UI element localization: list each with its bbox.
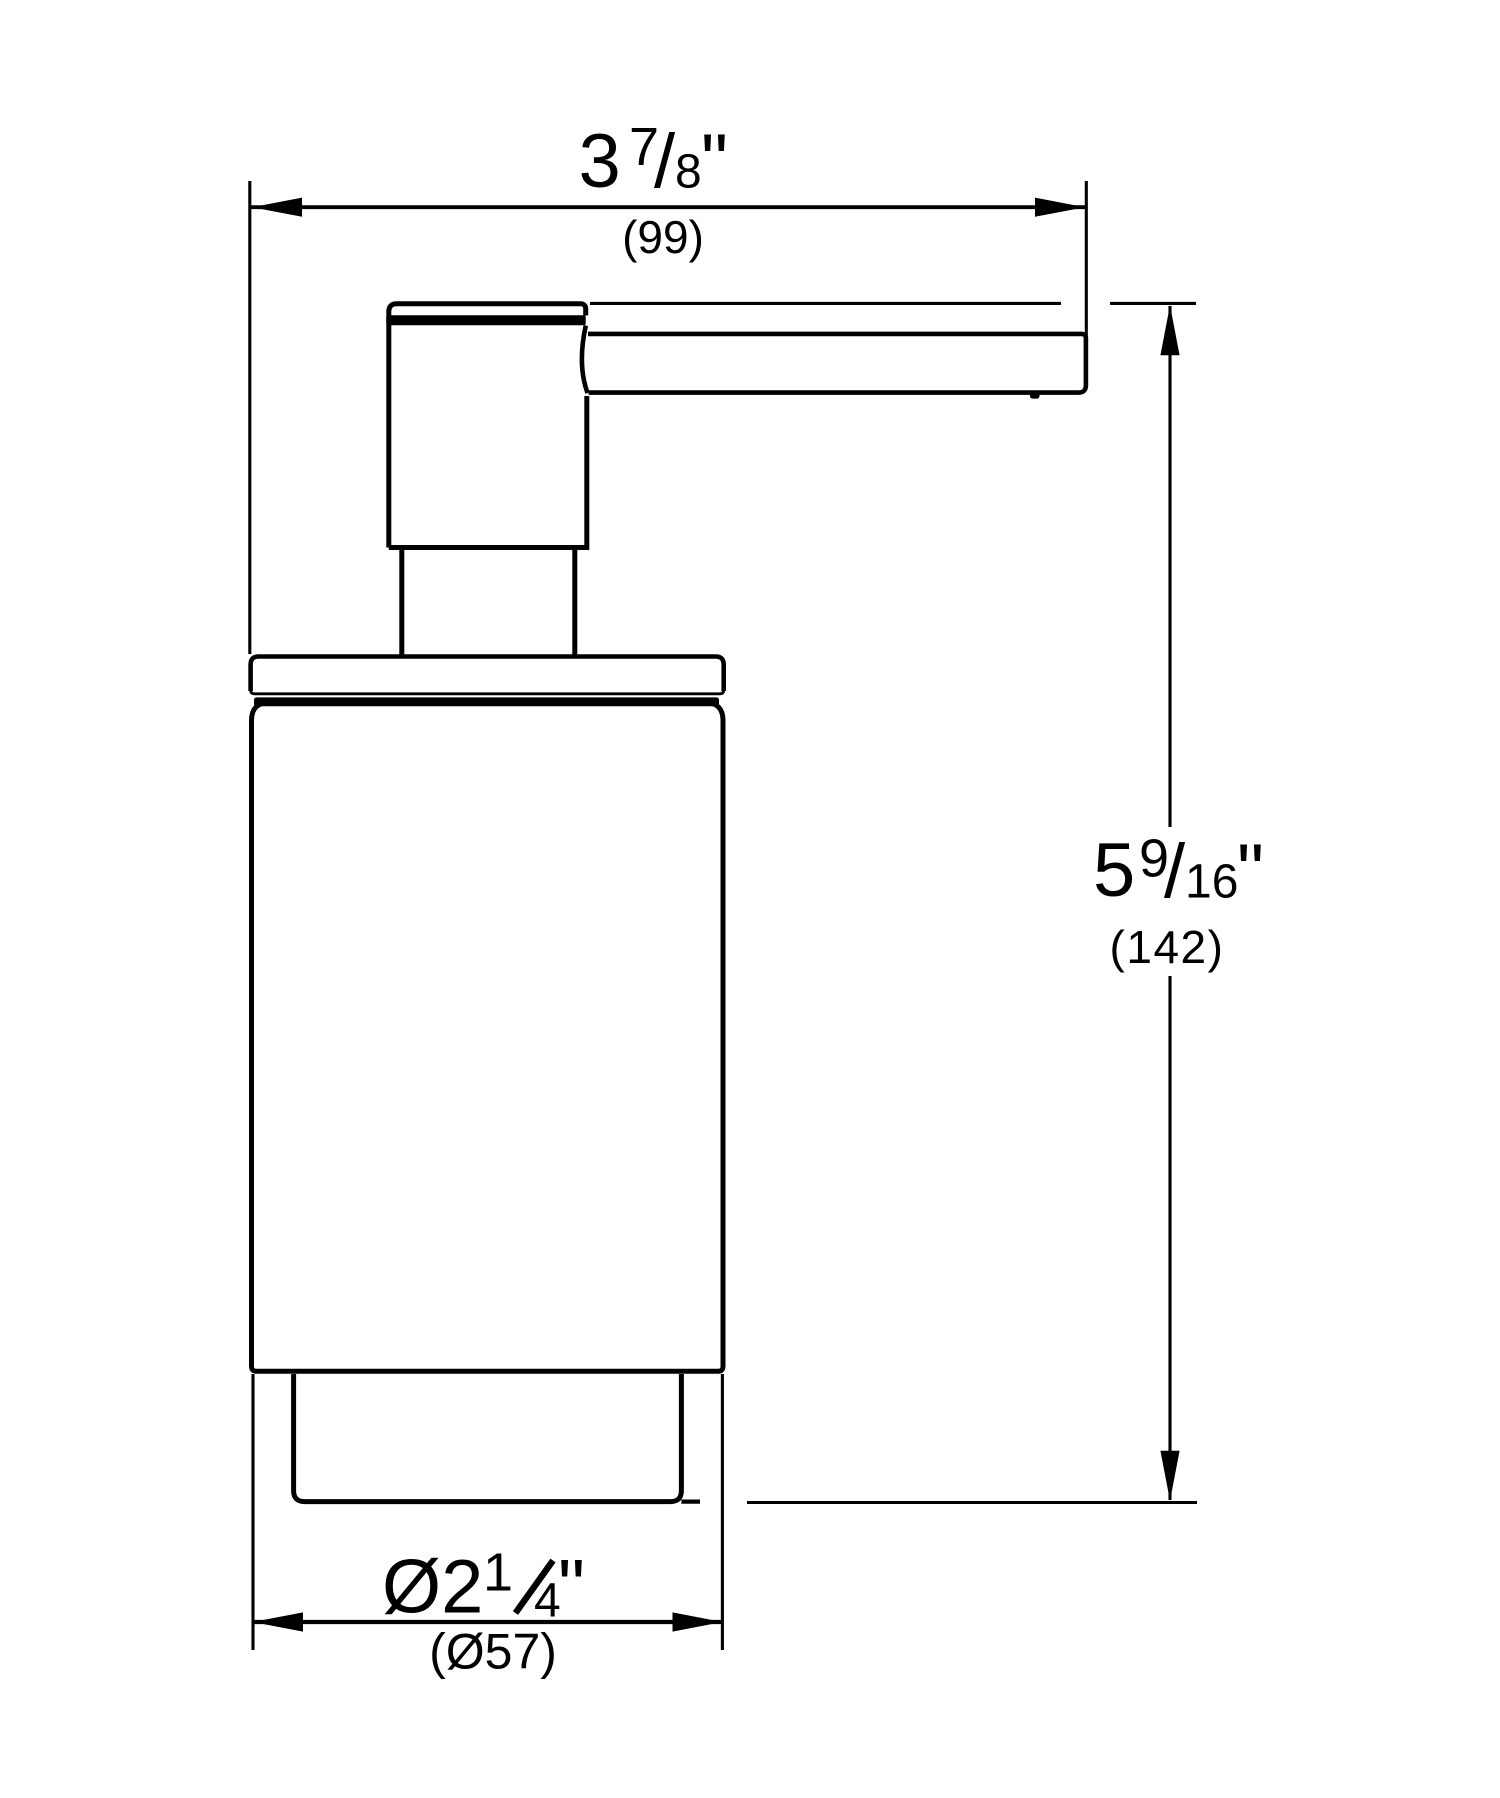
svg-text:(Ø57): (Ø57) — [429, 1624, 557, 1680]
svg-text:": " — [701, 119, 728, 204]
svg-text:8: 8 — [675, 146, 702, 199]
svg-text:Ø2: Ø2 — [382, 1545, 483, 1630]
svg-text:(99): (99) — [622, 211, 704, 263]
svg-text:/: / — [1164, 829, 1186, 914]
svg-text:1: 1 — [483, 1543, 513, 1603]
svg-text:16: 16 — [1185, 856, 1238, 909]
svg-text:3: 3 — [579, 119, 621, 204]
svg-text:(142): (142) — [1110, 921, 1225, 973]
svg-text:": " — [558, 1545, 585, 1630]
svg-text:": " — [1237, 829, 1264, 914]
svg-text:5: 5 — [1093, 828, 1135, 913]
svg-text:/: / — [654, 119, 676, 204]
svg-text:4: 4 — [534, 1575, 561, 1628]
